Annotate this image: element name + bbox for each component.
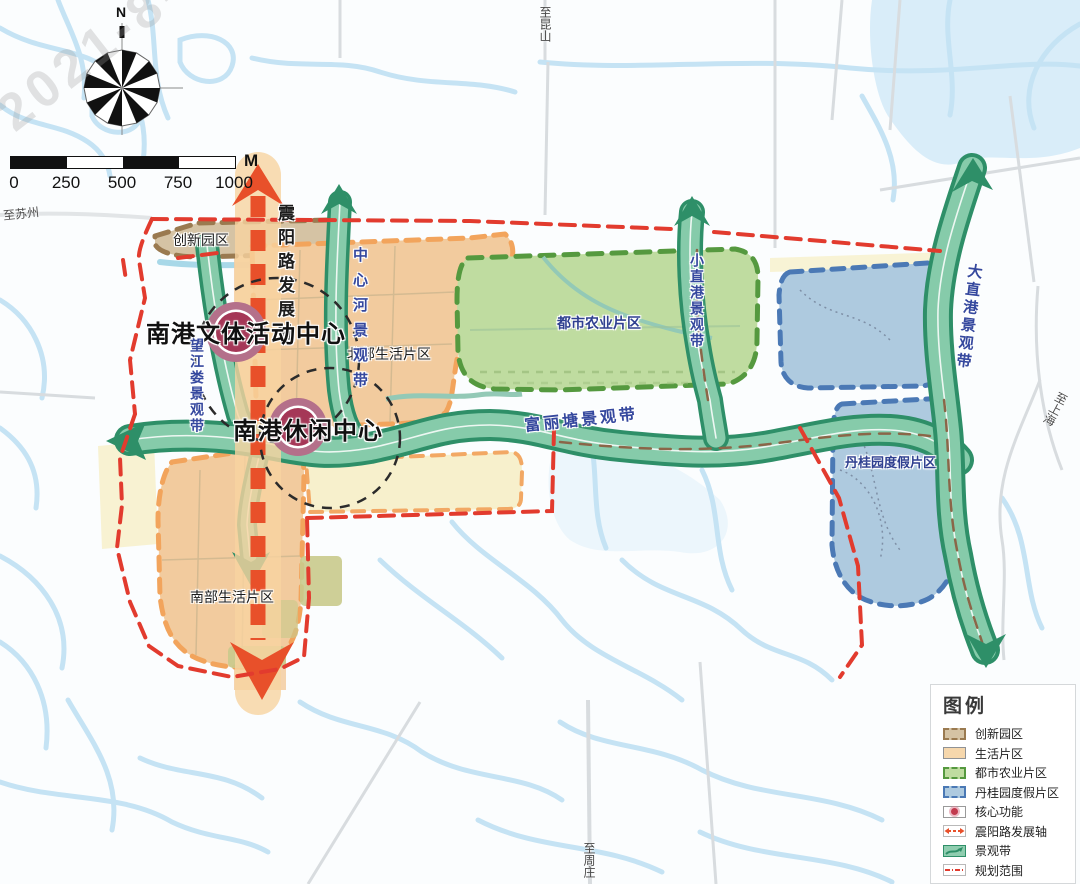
legend-label: 生活片区 [975, 745, 1023, 762]
scale-unit: M [244, 151, 258, 171]
legend-label: 创新园区 [975, 725, 1023, 742]
scale-bar: 0 250 500 750 1000 M [10, 156, 270, 200]
legend-label: 丹桂园度假片区 [975, 784, 1059, 801]
legend-label: 震阳路发展轴 [975, 823, 1047, 840]
innovation-swatch [943, 728, 966, 740]
scale-tick-1000: 1000 [215, 173, 253, 193]
boundary-swatch [943, 864, 966, 876]
edge-label-zhouzhuang: 至周庄 [581, 842, 598, 878]
label-zhongxinhe-belt: 中心河景观带 [349, 247, 370, 397]
agriculture-swatch [943, 767, 966, 779]
belt-swatch [943, 845, 966, 857]
legend-label: 核心功能 [975, 803, 1023, 820]
boundary-dash-icon [944, 865, 965, 875]
axis-arrow-icon [944, 826, 965, 836]
legend-item-axis: 震阳路发展轴 [943, 822, 1067, 842]
core-dot-icon [951, 808, 958, 815]
legend-title: 图例 [943, 691, 1067, 718]
legend-label: 规划范围 [975, 862, 1023, 879]
scale-bar-segments [10, 156, 236, 169]
legend-item-boundary: 规划范围 [943, 861, 1067, 881]
legend-item-agriculture: 都市农业片区 [943, 763, 1067, 783]
label-leisure-center: 南港休闲中心 [233, 411, 383, 446]
planning-map: N 0 250 500 750 1000 M 2021-8-8 震阳路发展轴 南… [0, 0, 1080, 884]
label-agriculture: 都市农业片区 [557, 313, 641, 333]
edge-label-kunshan: 至昆山 [537, 6, 554, 42]
legend-label: 都市农业片区 [975, 764, 1047, 781]
label-xiaozhigang-belt: 小直港景观带 [687, 253, 707, 349]
living-swatch [943, 747, 966, 759]
legend-item-resort: 丹桂园度假片区 [943, 783, 1067, 803]
scale-tick-750: 750 [164, 173, 192, 193]
legend-label: 景观带 [975, 842, 1011, 859]
belt-arrow-icon [944, 846, 965, 856]
axis-swatch [943, 825, 966, 837]
legend-item-core: 核心功能 [943, 802, 1067, 822]
scale-tick-500: 500 [108, 173, 136, 193]
legend-item-innovation: 创新园区 [943, 724, 1067, 744]
label-south-living: 南部生活片区 [190, 587, 274, 607]
core-function-swatch [943, 806, 966, 818]
legend-panel: 图例 创新园区 生活片区 都市农业片区 丹桂园度假片区 核心功能 震阳路发展轴 … [930, 684, 1076, 884]
scale-tick-250: 250 [52, 173, 80, 193]
legend-item-belt: 景观带 [943, 841, 1067, 861]
legend-item-living: 生活片区 [943, 744, 1067, 764]
scale-tick-0: 0 [9, 173, 18, 193]
label-culture-sports-center: 南港文体活动中心 [146, 314, 346, 349]
regions [98, 220, 959, 690]
resort-swatch [943, 786, 966, 798]
label-resort: 丹桂园度假片区 [845, 452, 936, 471]
label-wangjianglou-belt: 望江娄景观带 [187, 338, 207, 434]
label-innovation-park: 创新园区 [173, 230, 229, 250]
region-pale-left [98, 441, 158, 549]
